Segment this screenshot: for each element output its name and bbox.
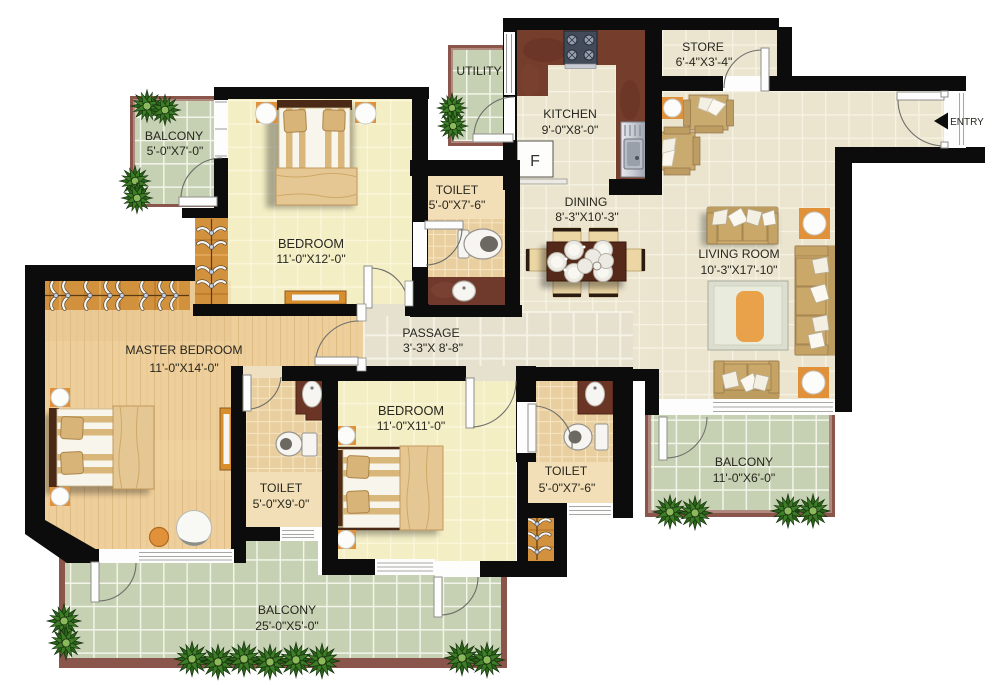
svg-text:MASTER BEDROOM: MASTER BEDROOM	[125, 343, 242, 357]
svg-text:11'-0"X12'-0": 11'-0"X12'-0"	[276, 252, 345, 266]
svg-text:5'-0"X7'-6": 5'-0"X7'-6"	[429, 198, 486, 212]
svg-text:11'-0"X6'-0": 11'-0"X6'-0"	[713, 471, 776, 485]
svg-text:F: F	[530, 153, 540, 170]
svg-text:9'-0"X8'-0": 9'-0"X8'-0"	[542, 123, 599, 137]
svg-text:LIVING ROOM: LIVING ROOM	[698, 247, 779, 261]
svg-text:BALCONY: BALCONY	[145, 129, 203, 143]
svg-text:TOILET: TOILET	[545, 464, 588, 478]
svg-text:UTILITY: UTILITY	[456, 64, 501, 78]
svg-text:25'-0"X5'-0": 25'-0"X5'-0"	[255, 619, 318, 633]
svg-text:DINING: DINING	[565, 195, 608, 209]
svg-text:STORE: STORE	[682, 40, 724, 54]
svg-text:10'-3"X17'-10": 10'-3"X17'-10"	[701, 263, 778, 277]
svg-text:PASSAGE: PASSAGE	[402, 326, 459, 340]
svg-text:BEDROOM: BEDROOM	[278, 236, 344, 251]
svg-text:BEDROOM: BEDROOM	[378, 403, 444, 418]
svg-text:5'-0"X7'-0": 5'-0"X7'-0"	[147, 144, 204, 158]
svg-text:6'-4"X3'-4": 6'-4"X3'-4"	[676, 55, 733, 69]
svg-text:ENTRY: ENTRY	[950, 117, 984, 128]
svg-text:3'-3"X 8'-8": 3'-3"X 8'-8"	[403, 341, 463, 355]
svg-text:11'-0"X11'-0": 11'-0"X11'-0"	[377, 419, 445, 433]
svg-text:5'-0"X7'-6": 5'-0"X7'-6"	[539, 481, 596, 495]
svg-text:11'-0"X14'-0": 11'-0"X14'-0"	[149, 361, 218, 375]
svg-text:8'-3"X10'-3": 8'-3"X10'-3"	[555, 210, 618, 224]
svg-text:5'-0"X9'-0": 5'-0"X9'-0"	[253, 497, 310, 511]
svg-text:BALCONY: BALCONY	[715, 455, 773, 469]
svg-text:TOILET: TOILET	[260, 481, 303, 495]
svg-text:BALCONY: BALCONY	[258, 603, 316, 617]
svg-text:TOILET: TOILET	[436, 183, 479, 197]
svg-text:KITCHEN: KITCHEN	[543, 107, 597, 121]
